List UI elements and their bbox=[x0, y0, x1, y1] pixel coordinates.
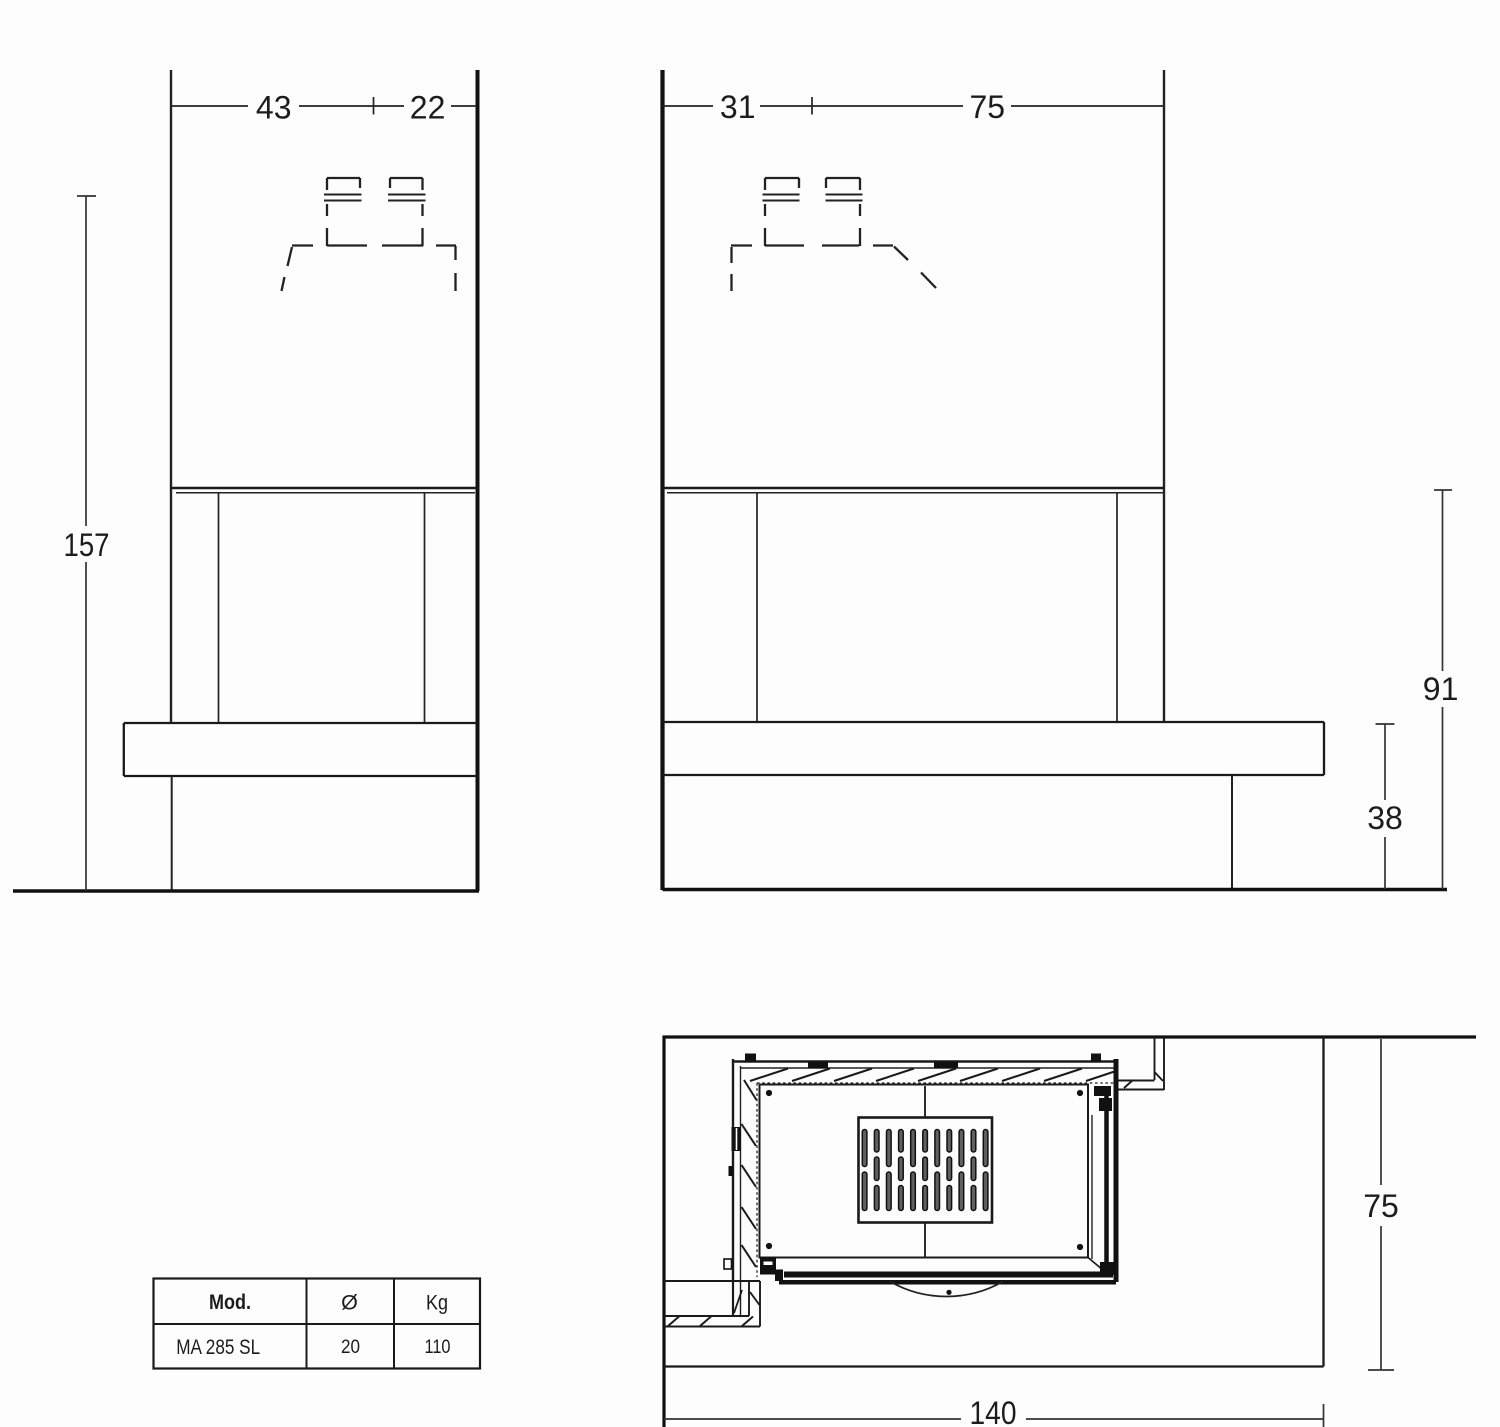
svg-text:31: 31 bbox=[720, 89, 756, 125]
svg-text:38: 38 bbox=[1367, 800, 1403, 836]
svg-text:22: 22 bbox=[410, 90, 446, 126]
svg-text:75: 75 bbox=[970, 89, 1006, 125]
svg-text:Ø: Ø bbox=[341, 1291, 358, 1315]
svg-text:Mod.: Mod. bbox=[209, 1290, 251, 1314]
svg-text:20: 20 bbox=[341, 1337, 360, 1358]
svg-text:75: 75 bbox=[1363, 1188, 1399, 1224]
svg-text:91: 91 bbox=[1423, 671, 1459, 707]
svg-text:Kg: Kg bbox=[426, 1291, 448, 1315]
svg-text:157: 157 bbox=[64, 527, 110, 563]
svg-text:140: 140 bbox=[970, 1395, 1017, 1427]
svg-text:MA 285 SL: MA 285 SL bbox=[176, 1335, 260, 1359]
svg-text:110: 110 bbox=[425, 1337, 451, 1358]
svg-text:43: 43 bbox=[256, 90, 292, 126]
